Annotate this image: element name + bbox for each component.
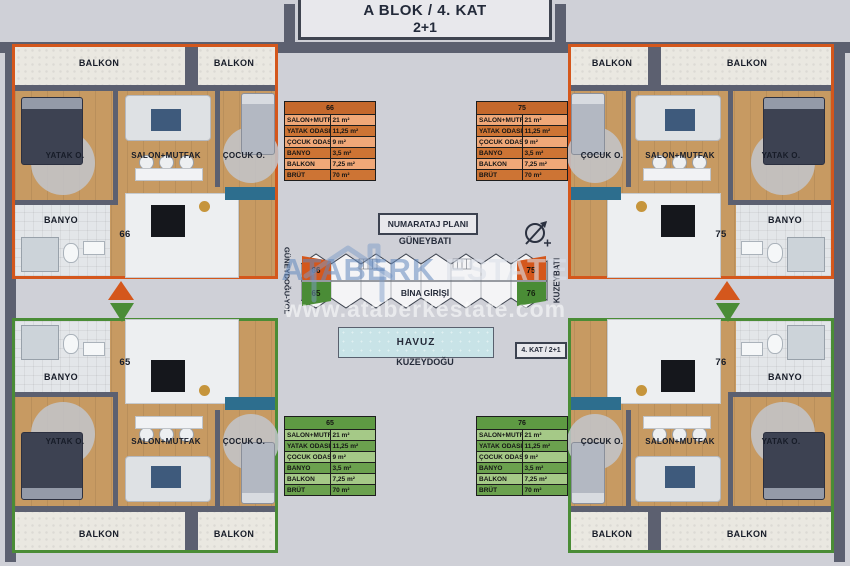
stove-shape (151, 360, 185, 392)
balcony-label: BALKON (198, 529, 270, 539)
child-bed-shape (241, 442, 275, 504)
wall (113, 91, 118, 205)
direction-northeast-label: KUZEYDOĞU (355, 357, 495, 367)
wall (215, 410, 220, 506)
kidsroom-label: ÇOCUK O. (571, 151, 633, 160)
area-table-unit-75: 75 SALON+MUTFAK21 m² YATAK ODASI11,25 m²… (476, 101, 568, 181)
table-row: BRÜT70 m² (285, 170, 376, 181)
stove-shape (151, 205, 185, 237)
balcony-divider-wall (648, 47, 661, 85)
child-bed-shape (571, 93, 605, 155)
bathroom-label: BANYO (743, 215, 827, 225)
bedroom-label: YATAK O. (19, 437, 111, 446)
bedroom-label: YATAK O. (735, 151, 827, 160)
block-title: A BLOK / 4. KAT (363, 2, 486, 19)
sink-shape (83, 241, 105, 255)
bathroom-label: BANYO (743, 372, 827, 382)
wardrobe-shape (225, 187, 275, 200)
sink-bowl-shape (199, 201, 210, 212)
toilet-shape (63, 334, 79, 354)
table-row: ÇOCUK ODASI9 m² (477, 137, 568, 148)
sink-bowl-shape (636, 385, 647, 396)
table-row: BANYO3,5 m² (285, 463, 376, 474)
table-row: YATAK ODASI11,25 m² (477, 441, 568, 452)
green-down-arrow-icon (110, 303, 134, 322)
numbering-plan-title: NUMARATAJ PLANI (378, 213, 478, 235)
toilet-shape (767, 334, 783, 354)
unit-number: 76 (703, 357, 739, 368)
shower-shape (787, 237, 825, 272)
coffee-table-shape (665, 109, 695, 131)
direction-southwest-label: GÜNEYBATI (365, 236, 485, 246)
stove-shape (661, 360, 695, 392)
wall (15, 392, 118, 397)
floor-plan-canvas: A BLOK / 4. KAT 2+1 BALKON BALKON YATAK … (0, 0, 850, 566)
wall (626, 91, 631, 187)
table-row: BRÜT70 m² (477, 485, 568, 496)
table-row: YATAK ODASI11,25 m² (285, 441, 376, 452)
table-row: BRÜT70 m² (285, 485, 376, 496)
dining-table-shape (135, 168, 203, 181)
wardrobe-shape (571, 187, 621, 200)
stove-shape (661, 205, 695, 237)
balcony-divider-wall (648, 512, 661, 550)
kidsroom-label: ÇOCUK O. (571, 437, 633, 446)
shower-shape (21, 325, 59, 360)
wardrobe-shape (571, 397, 621, 410)
kidsroom-label: ÇOCUK O. (213, 151, 275, 160)
table-row: BANYO3,5 m² (285, 148, 376, 159)
table-row: BANYO3,5 m² (477, 463, 568, 474)
apartment-unit-76: BALKON BALKON YATAK O. SALON+MUTFAK ÇOCU… (568, 318, 834, 553)
sink-bowl-shape (636, 201, 647, 212)
table-row: BALKON7,25 m² (477, 159, 568, 170)
livingroom-label: SALON+MUTFAK (625, 437, 735, 446)
livingroom-label: SALON+MUTFAK (111, 151, 221, 160)
child-bed-shape (241, 93, 275, 155)
table-row: SALON+MUTFAK21 m² (477, 115, 568, 126)
bedroom-label: YATAK O. (735, 437, 827, 446)
bathroom-label: BANYO (19, 372, 103, 382)
apartment-unit-65: BALKON BALKON YATAK O. SALON+MUTFAK ÇOCU… (12, 318, 278, 553)
shower-shape (787, 325, 825, 360)
unit-number: 65 (107, 357, 143, 368)
balcony-label: BALKON (198, 58, 270, 68)
block-subtitle: 2+1 (413, 19, 437, 35)
balcony-label: BALKON (576, 58, 648, 68)
green-down-arrow-icon (716, 303, 740, 322)
wall (113, 392, 118, 506)
table-row: BALKON7,25 m² (285, 474, 376, 485)
toilet-shape (767, 243, 783, 263)
svg-text:76: 76 (527, 289, 536, 298)
wardrobe-shape (225, 397, 275, 410)
balcony-label: BALKON (29, 58, 169, 68)
apartment-unit-75: BALKON BALKON YATAK O. SALON+MUTFAK ÇOCU… (568, 44, 834, 279)
toilet-shape (63, 243, 79, 263)
sink-bowl-shape (199, 385, 210, 396)
orange-up-arrow-icon (714, 281, 740, 300)
wall (15, 200, 118, 205)
svg-text:65: 65 (312, 289, 321, 298)
balcony-label: BALKON (677, 58, 817, 68)
table-row: YATAK ODASI11,25 m² (477, 126, 568, 137)
area-table-header: 66 (285, 102, 376, 115)
table-row: YATAK ODASI11,25 m² (285, 126, 376, 137)
balcony-label: BALKON (677, 529, 817, 539)
svg-text:66: 66 (312, 266, 321, 275)
right-wall-bar (834, 42, 845, 562)
building-entrance-label: BİNA GİRİŞİ (355, 288, 495, 298)
table-row: ÇOCUK ODASI9 m² (285, 452, 376, 463)
table-row: ÇOCUK ODASI9 m² (285, 137, 376, 148)
wall (15, 85, 275, 91)
coffee-table-shape (665, 466, 695, 488)
bathroom-label: BANYO (19, 215, 103, 225)
balcony-label: BALKON (29, 529, 169, 539)
table-row: BANYO3,5 m² (477, 148, 568, 159)
title-left-wall-stub (284, 4, 295, 44)
kidsroom-label: ÇOCUK O. (213, 437, 275, 446)
table-row: SALON+MUTFAK21 m² (285, 115, 376, 126)
sink-shape (741, 241, 763, 255)
floor-type-badge: 4. KAT / 2+1 (515, 342, 567, 359)
wall (15, 506, 275, 512)
wall (571, 506, 831, 512)
table-row: BRÜT70 m² (477, 170, 568, 181)
building-numbering-mini-plan: 66 65 75 76 (301, 250, 549, 314)
livingroom-label: SALON+MUTFAK (625, 151, 735, 160)
sink-shape (83, 342, 105, 356)
area-table-unit-76: 76 SALON+MUTFAK21 m² YATAK ODASI11,25 m²… (476, 416, 568, 496)
coffee-table-shape (151, 109, 181, 131)
area-table-unit-66: 66 SALON+MUTFAK21 m² YATAK ODASI11,25 m²… (284, 101, 376, 181)
area-table-header: 76 (477, 417, 568, 430)
balcony-divider-wall (185, 47, 198, 85)
table-row: BALKON7,25 m² (285, 159, 376, 170)
balcony-label: BALKON (576, 529, 648, 539)
unit-number: 66 (107, 229, 143, 240)
wall (728, 91, 733, 205)
area-table-header: 65 (285, 417, 376, 430)
compass-icon (520, 216, 554, 250)
sink-shape (741, 342, 763, 356)
table-row: ÇOCUK ODASI9 m² (477, 452, 568, 463)
wall (728, 200, 831, 205)
livingroom-label: SALON+MUTFAK (111, 437, 221, 446)
dining-table-shape (643, 168, 711, 181)
wall (571, 85, 831, 91)
area-table-unit-65: 65 SALON+MUTFAK21 m² YATAK ODASI11,25 m²… (284, 416, 376, 496)
coffee-table-shape (151, 466, 181, 488)
wall (626, 410, 631, 506)
unit-number: 75 (703, 229, 739, 240)
balcony-divider-wall (185, 512, 198, 550)
dining-table-shape (135, 416, 203, 429)
apartment-unit-66: BALKON BALKON YATAK O. SALON+MUTFAK ÇOCU… (12, 44, 278, 279)
table-row: BALKON7,25 m² (477, 474, 568, 485)
shower-shape (21, 237, 59, 272)
block-title-box: A BLOK / 4. KAT 2+1 (298, 0, 552, 40)
pool-area: HAVUZ (338, 327, 494, 358)
orange-up-arrow-icon (108, 281, 134, 300)
wall (728, 392, 733, 506)
wall (215, 91, 220, 187)
svg-text:75: 75 (527, 266, 536, 275)
table-row: SALON+MUTFAK21 m² (477, 430, 568, 441)
wall (728, 392, 831, 397)
dining-table-shape (643, 416, 711, 429)
pool-label: HAVUZ (397, 337, 436, 348)
child-bed-shape (571, 442, 605, 504)
bedroom-label: YATAK O. (19, 151, 111, 160)
direction-southeast-road-label: GÜNEYDOĞU-YOL (283, 223, 292, 339)
table-row: SALON+MUTFAK21 m² (285, 430, 376, 441)
title-right-wall-stub (555, 4, 566, 44)
area-table-header: 75 (477, 102, 568, 115)
